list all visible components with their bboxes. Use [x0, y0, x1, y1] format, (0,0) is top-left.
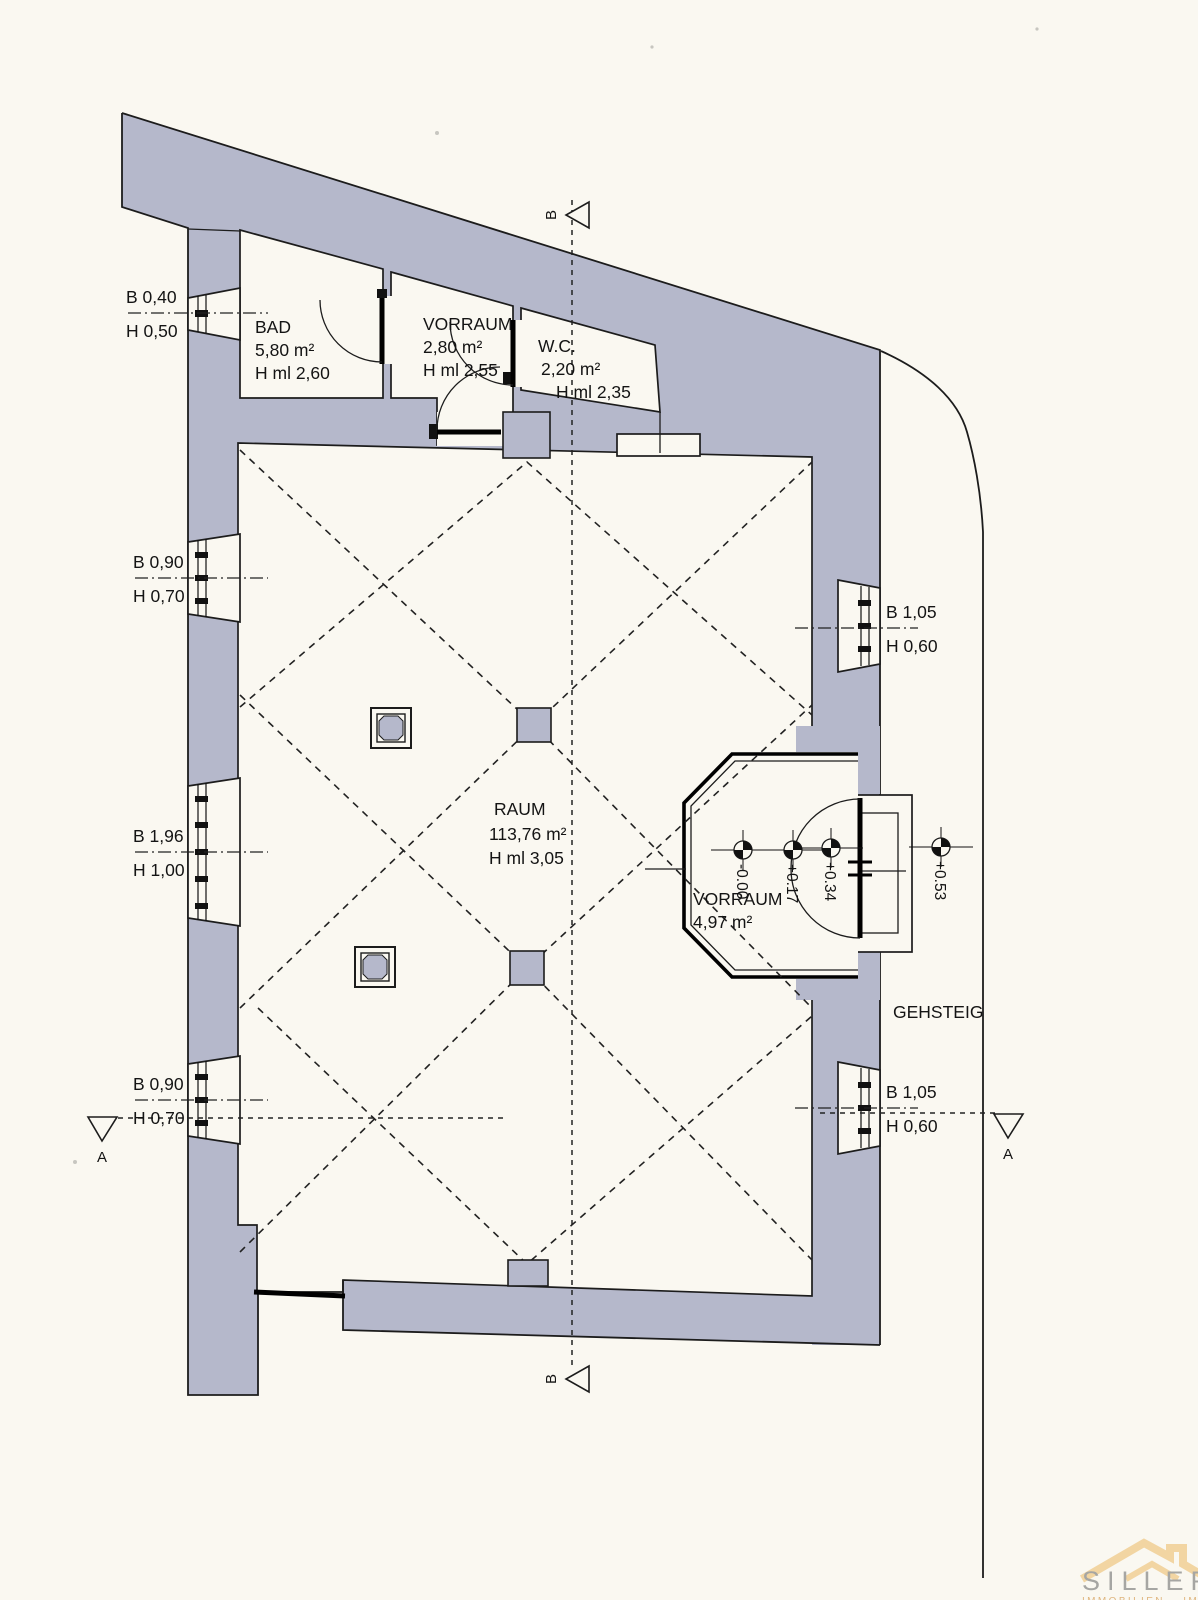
- room-area-raum: 113,76 m²: [489, 824, 567, 844]
- section-label-b-top: B: [543, 210, 560, 220]
- section-arrow-a-left: [88, 1117, 117, 1141]
- dim-left-4-h: H 0,70: [133, 1108, 185, 1128]
- dim-left-1-h: H 0,50: [126, 321, 178, 341]
- section-label-a-right: A: [1003, 1146, 1013, 1163]
- bottom-wall-pillar: [508, 1260, 548, 1286]
- room-name-wc: W.C.: [538, 336, 576, 356]
- room-height-raum: H ml 3,05: [489, 848, 564, 868]
- logo-tagline: IMMOBILIEN – IMMOBIL: [1082, 1596, 1198, 1600]
- dim-left-3-b: B 1,96: [133, 826, 184, 846]
- dim-left-4-b: B 0,90: [133, 1074, 184, 1094]
- room-height-wc: H ml 2,35: [556, 382, 631, 402]
- level-value: +0.53: [931, 861, 948, 900]
- dim-left-3-h: H 1,00: [133, 860, 185, 880]
- window-left-1: [188, 288, 240, 340]
- room-area-bad: 5,80 m²: [255, 340, 314, 360]
- dim-right-1-h: H 0,60: [886, 636, 938, 656]
- sidewalk-curb-line: [881, 351, 983, 1578]
- level-value: +0.34: [821, 862, 838, 902]
- room-area-wc: 2,20 m²: [541, 359, 600, 379]
- company-logo: SILLER IMMOBILIEN – IMMOBIL: [1082, 1543, 1198, 1600]
- label-gehsteig: GEHSTEIG: [893, 1002, 983, 1022]
- window-right-1: [838, 580, 880, 672]
- section-arrow-b-top: [566, 202, 589, 228]
- column-1: [371, 708, 411, 748]
- dim-left-2-b: B 0,90: [133, 552, 184, 572]
- section-label-a-left: A: [97, 1149, 107, 1166]
- section-arrow-a-right: [994, 1114, 1023, 1138]
- room-name-raum: RAUM: [494, 799, 546, 819]
- logo-name: SILLER: [1082, 1566, 1198, 1596]
- floor-plan-page: B B A A -0.00 +0.17 +0.34 +0.53: [0, 0, 1198, 1600]
- room-area-vorraum-top: 2,80 m²: [423, 337, 482, 357]
- dim-right-2-b: B 1,05: [886, 1082, 937, 1102]
- room-height-vorraum-top: H ml 2,55: [423, 360, 498, 380]
- room-area-vorraum-entry: 4,97 m²: [693, 912, 752, 932]
- top-wall-pillar: [503, 412, 550, 458]
- vault-cross-pad-2: [510, 951, 544, 985]
- room-height-bad: H ml 2,60: [255, 363, 330, 383]
- dim-right-1-b: B 1,05: [886, 602, 937, 622]
- floor-plan-svg: B B A A -0.00 +0.17 +0.34 +0.53: [0, 0, 1198, 1600]
- section-arrow-b-bottom: [566, 1366, 589, 1392]
- section-label-b-bottom: B: [543, 1374, 560, 1384]
- dim-right-2-h: H 0,60: [886, 1116, 938, 1136]
- room-name-bad: BAD: [255, 317, 291, 337]
- vault-cross-pad-1: [517, 708, 551, 742]
- dim-left-1-b: B 0,40: [126, 287, 177, 307]
- level-marker-3: +0.53: [909, 827, 973, 900]
- dim-left-2-h: H 0,70: [133, 586, 185, 606]
- raum-wall-niche: [617, 434, 700, 456]
- level-value: +0.17: [783, 864, 800, 903]
- column-2: [355, 947, 395, 987]
- room-name-vorraum-top: VORRAUM: [423, 314, 512, 334]
- room-name-vorraum-entry: VORRAUM: [693, 889, 782, 909]
